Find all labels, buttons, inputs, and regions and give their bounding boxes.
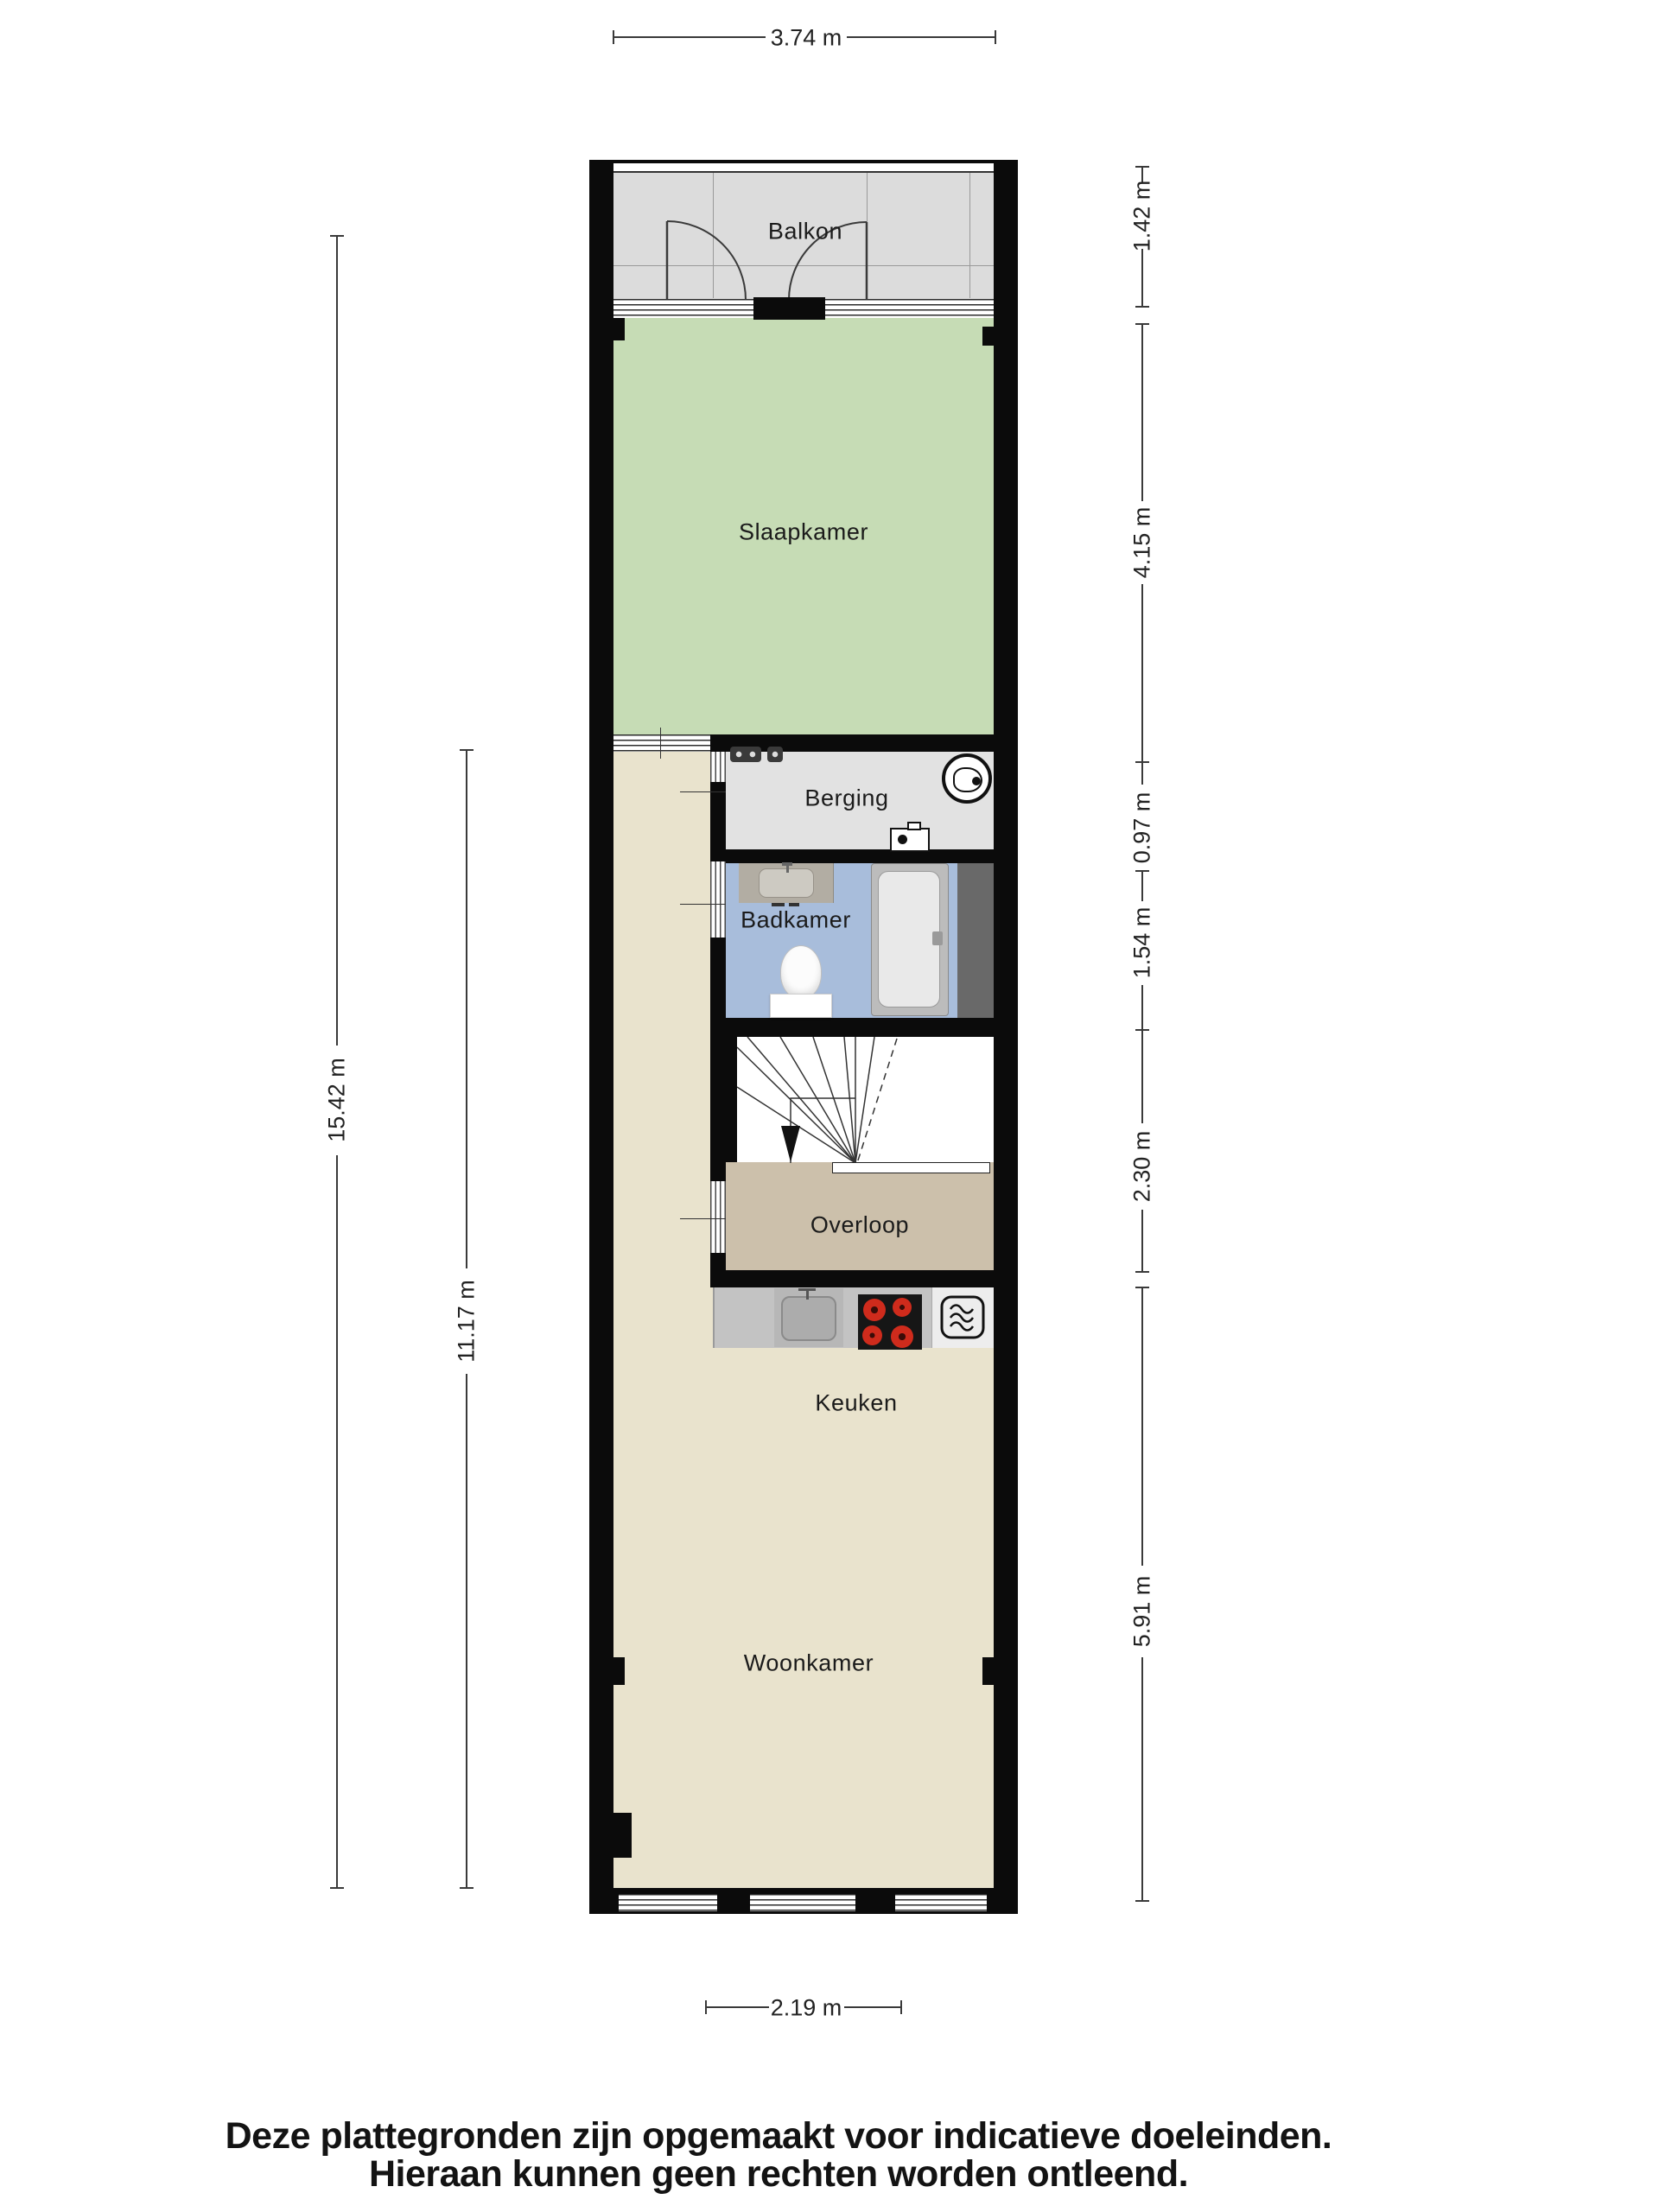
dim-label-trap-overloop-depth: 2.30 m (1129, 1131, 1156, 1203)
dim-tick (613, 30, 614, 44)
door-swing-tick (680, 1218, 726, 1219)
staircase (737, 1037, 994, 1175)
window (613, 299, 753, 316)
dim-tick (900, 2000, 902, 2014)
door-swing-tick (680, 791, 726, 792)
stove-icon (858, 1294, 922, 1350)
dim-line (1141, 584, 1143, 761)
dim-label-left-lower: 11.17 m (454, 1280, 480, 1363)
window (895, 1894, 987, 1911)
outer-wall-right (994, 160, 1018, 1914)
door-opening (710, 861, 726, 938)
window (825, 299, 994, 316)
wall-pier (613, 1657, 625, 1685)
shower-side-panel (957, 863, 994, 1018)
room-label-balkon: Balkon (768, 219, 842, 245)
kitchen-faucet-icon (806, 1288, 809, 1300)
dim-line (1141, 249, 1143, 306)
dim-line (1141, 1210, 1143, 1271)
stair-tread-landing (832, 1162, 990, 1173)
dim-line (847, 36, 995, 38)
room-label-berging: Berging (804, 785, 888, 812)
dim-line (336, 1155, 338, 1888)
wall-pier (982, 327, 994, 346)
dim-label-keuken-woonkamer-depth: 5.91 m (1129, 1576, 1156, 1648)
cabinet-handle (789, 903, 799, 906)
dim-line (1141, 1030, 1143, 1123)
dim-tick (1135, 306, 1149, 308)
dim-line (1141, 762, 1143, 785)
toilet-cistern (770, 994, 832, 1018)
door-swing-tick (680, 904, 726, 905)
balcony-railing (589, 160, 1018, 173)
door-opening (710, 752, 726, 782)
dim-tick (330, 235, 344, 237)
wall-badkamer-bottom (726, 1018, 994, 1037)
dim-label-balkon-depth: 1.42 m (1129, 181, 1156, 252)
toilet-icon (780, 945, 822, 999)
dim-tick (330, 1887, 344, 1889)
dim-line (844, 2006, 901, 2008)
dim-label-left-total: 15.42 m (324, 1058, 351, 1142)
disclaimer-line-2: Hieraan kunnen geen rechten worden ontle… (0, 2153, 1608, 2196)
room-label-overloop: Overloop (810, 1212, 909, 1239)
dim-line (1141, 324, 1143, 501)
dim-line (336, 236, 338, 1046)
wall-berging-bottom (726, 849, 994, 863)
dim-line (1141, 871, 1143, 901)
dim-line (466, 750, 467, 1268)
dim-tick (995, 30, 996, 44)
balcony-door-swing-icon (613, 173, 994, 318)
dim-label-slaapkamer-depth: 4.15 m (1129, 507, 1156, 579)
bathroom-sink-basin (759, 868, 814, 898)
boiler-icon (890, 828, 930, 852)
tub-faucet-icon (932, 931, 943, 945)
wall-pier (982, 1657, 994, 1685)
dim-tick (1135, 1900, 1149, 1902)
floor-plan-page: Balkon Slaapkamer Berging Badkamer Overl… (0, 0, 1659, 2212)
washing-machine-icon (942, 753, 992, 804)
hallway-floor (613, 752, 710, 1287)
dim-line (613, 36, 766, 38)
faucet-icon (786, 865, 789, 873)
bathtub-icon (871, 863, 949, 1016)
stairs-side-wall (726, 1037, 737, 1162)
dim-line (466, 1374, 467, 1888)
dim-tick (1135, 1271, 1149, 1273)
hallway-wall (710, 782, 726, 861)
keuken-woonkamer-floor (613, 1287, 994, 1888)
dim-label-badkamer-depth: 1.54 m (1129, 907, 1156, 979)
stairs-down-arrow-icon (781, 1126, 800, 1162)
room-label-badkamer: Badkamer (741, 907, 851, 934)
dim-tick (460, 749, 474, 751)
microwave-icon (939, 1294, 986, 1341)
dim-label-bottom-width: 2.19 m (771, 1995, 842, 2022)
window (619, 1894, 717, 1911)
dim-label-berging-depth: 0.97 m (1129, 792, 1156, 864)
dim-tick (705, 2000, 707, 2014)
dim-line (1141, 1287, 1143, 1566)
room-label-woonkamer: Woonkamer (744, 1650, 874, 1677)
room-label-keuken: Keuken (815, 1390, 897, 1417)
room-label-slaapkamer: Slaapkamer (739, 519, 868, 546)
disclaimer-line-1: Deze plattegronden zijn opgemaakt voor i… (0, 2115, 1608, 2158)
utility-meter-icon (767, 747, 783, 762)
outer-wall-left (589, 160, 613, 1914)
window (613, 734, 710, 752)
door-opening (710, 1181, 726, 1253)
hallway-wall (710, 1253, 726, 1270)
dim-line (1141, 1657, 1143, 1900)
door-threshold (753, 297, 825, 320)
wall-pier (613, 1813, 632, 1858)
dim-label-top-width: 3.74 m (771, 25, 842, 52)
window-divider-tick (660, 728, 661, 759)
utility-meter-icon (730, 747, 761, 762)
cabinet-handle (772, 903, 785, 906)
kitchen-sink-icon (781, 1296, 836, 1341)
hallway-wall (710, 938, 726, 1181)
dim-tick (460, 1887, 474, 1889)
wall-pier (613, 318, 625, 340)
window (750, 1894, 855, 1911)
dim-line (1141, 985, 1143, 1029)
dim-line (706, 2006, 769, 2008)
wall-overloop-bottom (710, 1270, 994, 1287)
